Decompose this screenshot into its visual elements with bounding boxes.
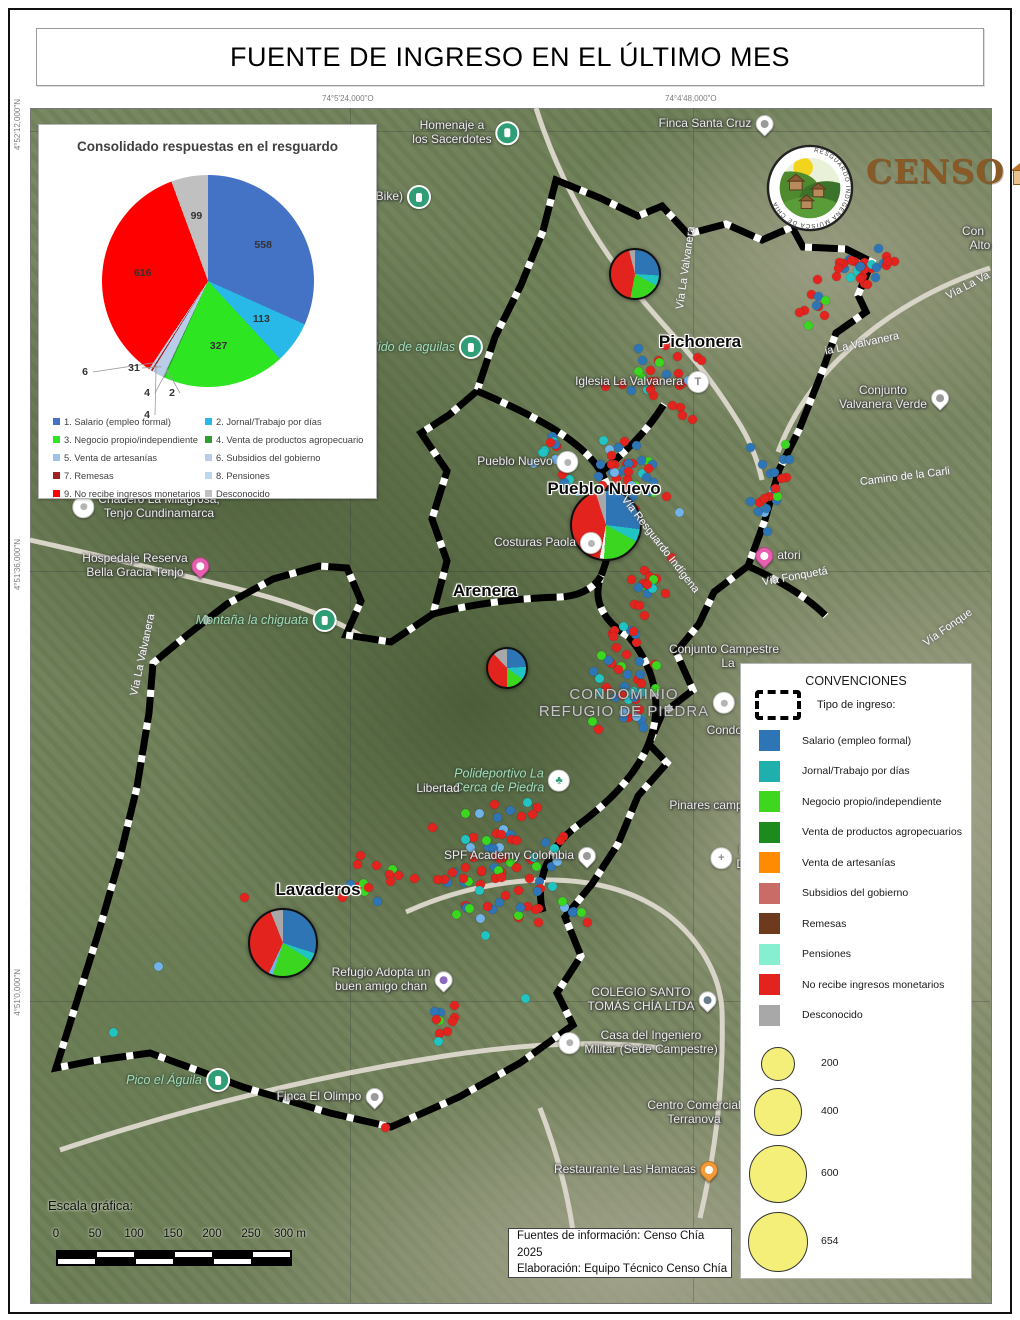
survey-dot: [863, 280, 872, 289]
pie-value-label: 6: [82, 366, 88, 378]
size-circle-200: [761, 1047, 795, 1081]
survey-dot: [558, 897, 567, 906]
survey-dot: [516, 903, 525, 912]
pie-value-label: 99: [191, 210, 203, 222]
map-label-nido-de-aguilas: Nido de aguilas: [369, 335, 483, 359]
legend-item-5: Subsidios del gobierno: [759, 883, 908, 904]
scale-bar-area: Escala gráfica: 050100150200250300 m: [48, 1198, 338, 1278]
scale-tick-label: 100: [124, 1228, 143, 1240]
poi-green-icon: [496, 121, 520, 145]
legend-item-label: Negocio propio/independiente: [802, 796, 942, 808]
survey-dot: [688, 415, 697, 424]
survey-dot: [528, 810, 537, 819]
pie-value-label: 113: [253, 313, 270, 325]
map-label-finca-santa-cruz: Finca Santa Cruz: [659, 115, 774, 133]
survey-dot: [746, 443, 755, 452]
legend-item-1: Jornal/Trabajo por días: [759, 761, 910, 782]
legend-item-7: Pensiones: [759, 944, 851, 965]
size-circle-654: [748, 1212, 808, 1272]
survey-dot: [746, 497, 755, 506]
poi-circle-icon: [713, 692, 735, 714]
legend-item-label: Venta de productos agropecuarios: [802, 826, 962, 838]
map-label-text: Homenaje alos Sacerdotes: [412, 119, 491, 147]
source-box: Fuentes de información: Censo Chía 2025 …: [508, 1228, 732, 1278]
map-label-text: La: [721, 657, 734, 671]
pie-chart-panel: Consolidado respuestas en el resguardo 1…: [38, 124, 377, 499]
scale-bar-cell: [135, 1251, 174, 1258]
scale-tick-label: 200: [202, 1228, 221, 1240]
poi-pin-icon: [695, 987, 720, 1012]
survey-dot: [609, 632, 618, 641]
poi-green-icon: [206, 1068, 230, 1092]
poi-green-icon: [312, 608, 336, 632]
survey-dot: [240, 893, 249, 902]
survey-dot: [475, 809, 484, 818]
size-circle-label: 400: [821, 1105, 839, 1117]
boundary-legend-row: Tipo de ingreso:: [755, 690, 955, 720]
survey-dot: [556, 836, 565, 845]
survey-dot: [678, 411, 687, 420]
survey-dot: [497, 830, 506, 839]
map-label-text: Pueblo Nuevo: [547, 479, 660, 499]
survey-dot: [632, 638, 641, 647]
map-label-text: Lavaderos: [275, 880, 360, 900]
map-label-text: Hospedaje ReservaBella Gracia Tenjo: [82, 552, 187, 580]
scale-tick-label: 300 m: [274, 1228, 306, 1240]
scale-tick-label: 150: [163, 1228, 182, 1240]
scale-bar-cell: [213, 1258, 252, 1265]
survey-dot: [410, 874, 419, 883]
survey-dot: [568, 908, 577, 917]
page-title: FUENTE DE INGRESO EN EL ÚLTIMO MES: [230, 42, 790, 73]
survey-dot: [804, 321, 813, 330]
survey-dot: [762, 504, 771, 513]
pie-value-label: 2: [169, 387, 175, 399]
pie-value-label: 4: [144, 409, 150, 421]
map-label-hospedaje-reserva: Hospedaje ReservaBella Gracia Tenjo: [82, 552, 209, 580]
map-label-text: Nido de aguilas: [369, 340, 455, 354]
poi-pin-icon: [431, 967, 456, 992]
map-label-text: COLEGIO SANTOTOMÁS CHÍA LTDA: [588, 986, 695, 1014]
map-label-libertad: Libertad: [416, 782, 459, 796]
survey-dot: [629, 627, 638, 636]
survey-dot: [373, 897, 382, 906]
map-label-text: ConjuntoValvanera Verde: [839, 384, 927, 412]
pie-value-label: 558: [254, 239, 272, 251]
survey-dot: [353, 860, 362, 869]
poi-pin-icon: [574, 843, 599, 868]
boundary-label: Tipo de ingreso:: [817, 699, 895, 711]
poi-pin-icon: [752, 543, 777, 568]
map-label-text: Pichonera: [659, 332, 741, 352]
poi-circle-icon: ♣: [548, 770, 570, 792]
legend-swatch: [759, 730, 780, 751]
scale-tick-label: 0: [53, 1228, 59, 1240]
map-label-text: Pueblo Nuevo: [477, 455, 552, 469]
legend-item-3: Venta de productos agropecuarios: [759, 822, 962, 843]
size-circle-label: 200: [821, 1057, 839, 1069]
map-label-conjunto: ConjuntoValvanera Verde: [839, 384, 949, 412]
map-label-text: Polideportivo LaCerca de Piedra: [454, 767, 544, 796]
survey-dot: [448, 1017, 457, 1026]
map-label-text: Alto: [970, 239, 991, 253]
map-label-text: Casa del IngenieroMilitar (Sede Campestr…: [584, 1029, 717, 1057]
coordinate-label-left: 4°51'36,000"N: [13, 539, 22, 590]
map-label-finca-el-olimpo: Finca El Olimpo: [277, 1088, 384, 1106]
poi-green-icon: [407, 185, 431, 209]
survey-dot: [636, 670, 645, 679]
legend-item-label: Pensiones: [802, 948, 851, 960]
censo-logo: CENSO: [866, 152, 1020, 191]
map-label-monta-a-la-chiguata: Montaña la chiguata: [196, 608, 337, 632]
map-label-text: Finca Santa Cruz: [659, 117, 752, 131]
map-label-polideportivo-la: Polideportivo LaCerca de Piedra♣: [454, 767, 570, 796]
survey-dot: [635, 601, 644, 610]
map-label-condominio: CONDOMINIOREFUGIO DE PIEDRA: [539, 686, 735, 721]
survey-dot: [521, 994, 530, 1003]
poi-pin-icon: [752, 111, 777, 136]
resguardo-ring-logo: RESGUARDO INDÍGENA MUISCA DE CHÍA: [766, 144, 854, 232]
map-label-text: Montaña la chiguata: [196, 613, 309, 627]
survey-dot: [634, 344, 643, 353]
map-label-text: Costuras Paola: [494, 536, 576, 550]
survey-dot: [821, 296, 830, 305]
scale-bar-cell: [57, 1258, 96, 1265]
poi-pin-icon: [188, 553, 213, 578]
survey-dot: [534, 918, 543, 927]
survey-dot: [856, 262, 865, 271]
scale-bar-cell: [96, 1251, 135, 1258]
survey-dot: [465, 904, 474, 913]
map-label-text: SPF Academy Colombia: [444, 849, 574, 863]
poi-circle-icon: [558, 1032, 580, 1054]
map-label-text: CONDOMINIOREFUGIO DE PIEDRA: [539, 686, 709, 721]
map-label-colegio-santo: COLEGIO SANTOTOMÁS CHÍA LTDA: [588, 986, 717, 1014]
survey-dot: [627, 575, 636, 584]
scale-tick-label: 50: [89, 1228, 102, 1240]
map-label-casa-del-ingeniero: Casa del IngenieroMilitar (Sede Campestr…: [558, 1029, 717, 1057]
map-label-iglesia-la-valvanera: Iglesia La ValvaneraT: [575, 371, 709, 393]
scale-bar-cell: [252, 1258, 291, 1265]
map-label-text: Refugio Adopta unbuen amigo chan: [332, 966, 431, 994]
survey-dot: [461, 809, 470, 818]
survey-dot: [781, 440, 790, 449]
map-label-text: Finca El Olimpo: [277, 1090, 362, 1104]
survey-dot: [475, 886, 484, 895]
survey-dot: [546, 438, 555, 447]
survey-dot: [109, 1028, 118, 1037]
boundary-symbol: [755, 690, 801, 720]
legend-swatch: [759, 791, 780, 812]
scale-bar-cell: [213, 1251, 252, 1258]
scale-bar: [56, 1250, 292, 1266]
legend-swatch: [759, 883, 780, 904]
survey-dot: [594, 725, 603, 734]
scale-label: Escala gráfica:: [48, 1198, 133, 1213]
map-label-text: Libertad: [416, 782, 459, 796]
map-label-centro-comercial: Centro ComercialTerranova: [647, 1099, 740, 1127]
legend-title: CONVENCIONES: [741, 674, 971, 688]
survey-dot: [612, 643, 621, 652]
survey-dot: [596, 460, 605, 469]
survey-dot: [154, 962, 163, 971]
censo-logo-text: CENSO: [866, 152, 1005, 191]
survey-dot: [517, 812, 526, 821]
survey-dot: [512, 836, 521, 845]
map-label-pinares-camp: Pinares camp: [669, 799, 742, 813]
legend-item-0: Salario (empleo formal): [759, 730, 911, 751]
map-label-text: Arenera: [453, 581, 517, 601]
survey-dot: [356, 851, 365, 860]
survey-dot: [644, 464, 653, 473]
survey-dot: [443, 1027, 452, 1036]
scale-bar-cell: [174, 1251, 213, 1258]
map-label-refugio-adopta-un: Refugio Adopta unbuen amigo chan: [332, 966, 453, 994]
survey-dot: [461, 835, 470, 844]
map-label-text: Restaurante Las Hamacas: [554, 1163, 696, 1177]
legend-swatch: [759, 913, 780, 934]
survey-dot: [381, 1123, 390, 1132]
pie-callout-lines: [39, 125, 376, 498]
map-label-restaurante-las-hamacas: Restaurante Las Hamacas: [554, 1161, 718, 1179]
pie-value-label: 31: [128, 362, 140, 374]
legend-item-label: Remesas: [802, 918, 846, 930]
survey-dot: [834, 264, 843, 273]
survey-dot: [795, 308, 804, 317]
legend-swatch: [759, 944, 780, 965]
size-circle-label: 600: [821, 1167, 839, 1179]
survey-dot: [639, 723, 648, 732]
legend-item-label: Desconocido: [802, 1009, 863, 1021]
poi-circle-icon: [580, 532, 602, 554]
poi-pin-icon: [927, 385, 952, 410]
map-label-text: Iglesia La Valvanera: [575, 375, 683, 389]
survey-dot: [610, 468, 619, 477]
legend-swatch: [759, 1005, 780, 1026]
source-line2: Elaboración: Equipo Técnico Censo Chía: [517, 1261, 731, 1278]
coordinate-label-left: 4°52'12,000"N: [13, 99, 22, 150]
map-label-spf-academy-colombia: SPF Academy Colombia: [444, 847, 596, 865]
map-label-text: Pinares camp: [669, 799, 742, 813]
legend-item-label: No recibe ingresos monetarios: [802, 979, 944, 991]
survey-dot: [763, 527, 772, 536]
legend-swatch: [759, 761, 780, 782]
source-line1: Fuentes de información: Censo Chía 2025: [517, 1228, 731, 1261]
map-pie-pichonera: [609, 248, 661, 300]
map-label-lavaderos: Lavaderos: [275, 880, 360, 900]
map-label-pueblo-nuevo: Pueblo Nuevo: [547, 479, 660, 499]
survey-dot: [599, 436, 608, 445]
scale-bar-cell: [252, 1251, 291, 1258]
scale-bar-cell: [57, 1251, 96, 1258]
legend-item-8: No recibe ingresos monetarios: [759, 974, 944, 995]
survey-dot: [812, 301, 821, 310]
legend-panel: CONVENCIONES Tipo de ingreso: Salario (e…: [740, 663, 972, 1279]
survey-dot: [624, 467, 633, 476]
pie-value-label: 616: [134, 267, 152, 279]
poi-circle-icon: [557, 451, 579, 473]
legend-item-label: Salario (empleo formal): [802, 735, 911, 747]
map-label-la: La: [721, 657, 734, 671]
legend-item-2: Negocio propio/independiente: [759, 791, 942, 812]
legend-item-label: Venta de artesanías: [802, 857, 895, 869]
map-label-arenera: Arenera: [453, 581, 517, 601]
survey-dot: [607, 460, 616, 469]
survey-dot: [635, 657, 644, 666]
survey-dot: [597, 651, 606, 660]
map-label-con: Con: [962, 225, 984, 239]
scale-tick-label: 250: [241, 1228, 260, 1240]
legend-item-label: Jornal/Trabajo por días: [802, 765, 910, 777]
survey-dot: [386, 877, 395, 886]
poi-circle-icon: T: [687, 371, 709, 393]
survey-dot: [614, 443, 623, 452]
survey-dot: [497, 873, 506, 882]
map-label-text: atori: [777, 549, 800, 563]
map-label-homenaje-a: Homenaje alos Sacerdotes: [412, 119, 519, 147]
legend-item-label: Subsidios del gobierno: [802, 887, 908, 899]
map-label-text: Centro ComercialTerranova: [647, 1099, 740, 1127]
legend-swatch: [759, 852, 780, 873]
map-pie-arenera: [486, 647, 528, 689]
survey-dot: [541, 838, 550, 847]
pie-value-label: 4: [144, 387, 150, 399]
survey-dot: [777, 474, 786, 483]
map-label-alto: Alto: [970, 239, 991, 253]
legend-swatch: [759, 974, 780, 995]
survey-dot: [697, 356, 706, 365]
poi-pin-icon: [696, 1157, 721, 1182]
size-circle-600: [749, 1145, 807, 1203]
map-label-text: Pico el Águila: [126, 1073, 202, 1087]
legend-swatch: [759, 822, 780, 843]
map-pie-lavaderos: [248, 908, 318, 978]
survey-dot: [619, 622, 628, 631]
poi-pin-icon: [362, 1084, 387, 1109]
map-label-text: Con: [962, 225, 984, 239]
survey-dot: [614, 665, 623, 674]
census-house-magnifier-icon: [1011, 159, 1020, 185]
survey-dot: [501, 891, 510, 900]
map-label-text: Conjunto Campestre: [669, 643, 779, 657]
map-label-conjunto-campestre: Conjunto Campestre: [669, 643, 779, 657]
survey-dot: [661, 589, 670, 598]
size-circle-label: 654: [821, 1235, 839, 1247]
pie-value-label: 327: [210, 340, 228, 352]
map-label-pico-el-guila: Pico el Águila: [126, 1068, 230, 1092]
size-circle-400: [754, 1088, 802, 1136]
scale-bar-cell: [135, 1258, 174, 1265]
coordinate-label-top: 74°5'24,000"O: [322, 94, 374, 103]
map-label-pichonera: Pichonera: [659, 332, 741, 352]
survey-dot: [623, 670, 632, 679]
map-label-pueblo-nuevo: Pueblo Nuevo: [477, 451, 578, 473]
title-box: FUENTE DE INGRESO EN EL ÚLTIMO MES: [36, 28, 984, 86]
survey-dot: [481, 931, 490, 940]
scale-bar-cell: [96, 1258, 135, 1265]
legend-item-4: Venta de artesanías: [759, 852, 895, 873]
survey-dot: [483, 902, 492, 911]
coordinate-label-left: 4°51'0,000"N: [13, 969, 22, 1016]
survey-dot: [514, 886, 523, 895]
poi-green-icon: [459, 335, 483, 359]
survey-dot: [490, 800, 499, 809]
map-label-atori: atori: [755, 547, 800, 565]
coordinate-label-top: 74°4'48,000"O: [665, 94, 717, 103]
scale-bar-cell: [174, 1258, 213, 1265]
poi-circle-icon: +: [710, 847, 732, 869]
legend-item-6: Remesas: [759, 913, 846, 934]
survey-dot: [434, 1037, 443, 1046]
map-label-costuras-paola: Costuras Paola: [494, 532, 602, 554]
survey-dot: [476, 914, 485, 923]
legend-item-9: Desconocido: [759, 1005, 863, 1026]
